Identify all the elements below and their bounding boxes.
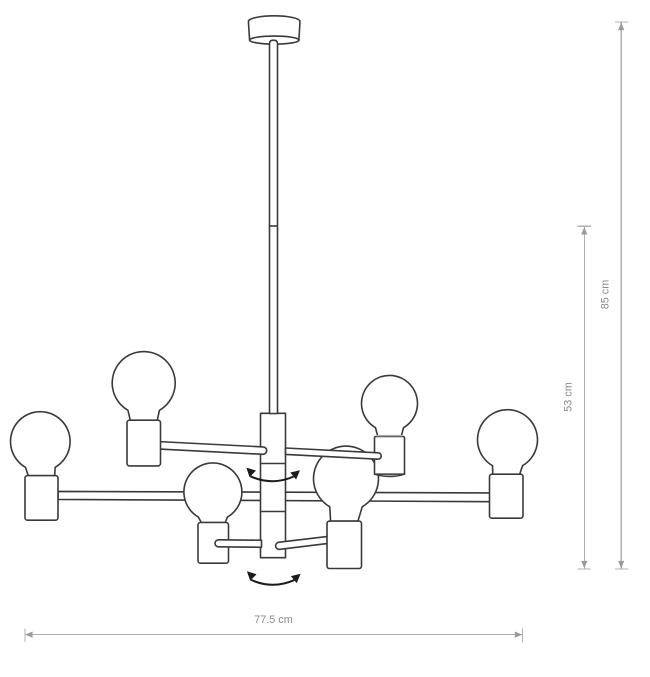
svg-text:85 cm: 85 cm xyxy=(599,280,611,309)
svg-text:77.5 cm: 77.5 cm xyxy=(254,614,292,626)
svg-text:53 cm: 53 cm xyxy=(563,382,575,411)
